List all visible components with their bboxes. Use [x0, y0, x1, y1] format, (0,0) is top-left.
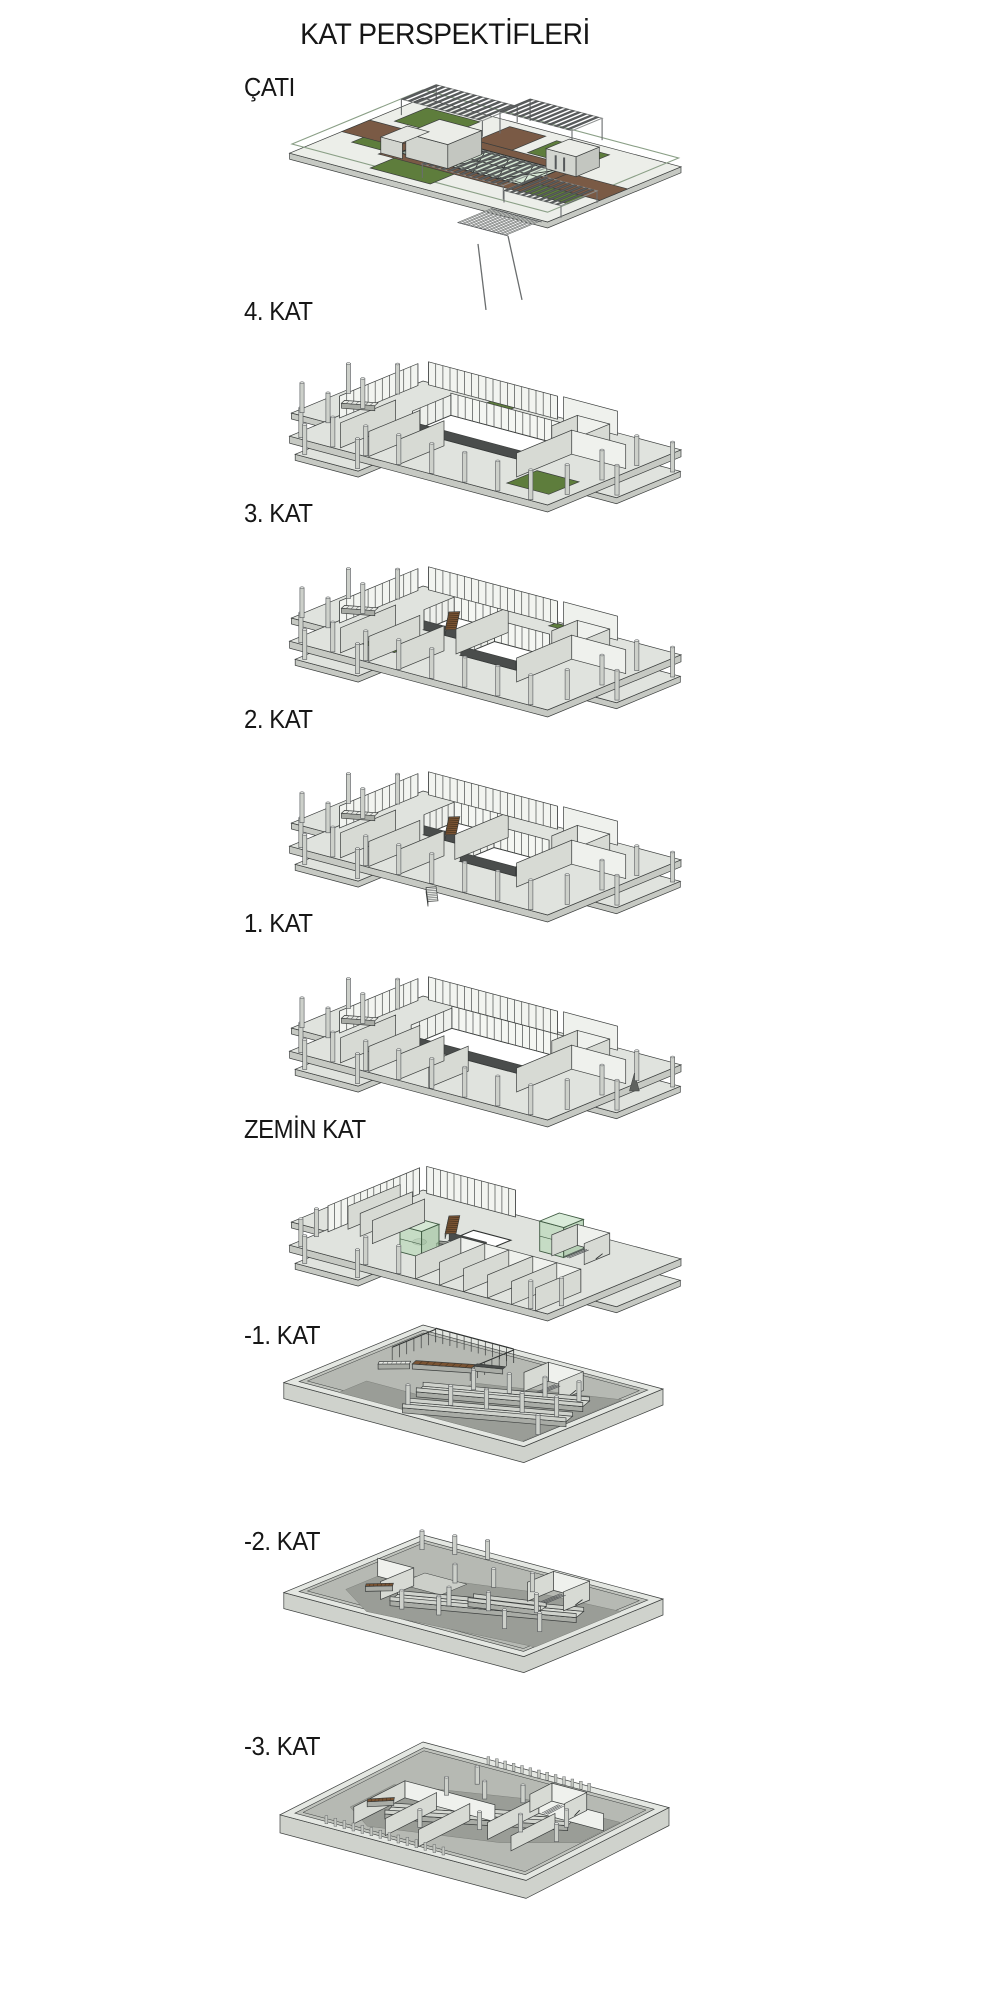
page: KAT PERSPEKTİFLERİ ÇATI4. KAT3. KAT2. KA…	[0, 0, 1000, 2000]
floor-label-kat1: 1. KAT	[244, 908, 313, 939]
floor-illustration-b3	[168, 1684, 728, 1974]
floor-label-kat2: 2. KAT	[244, 704, 313, 735]
floor-label-kat3: 3. KAT	[244, 498, 313, 529]
floor-illustration-cati	[168, 40, 728, 310]
